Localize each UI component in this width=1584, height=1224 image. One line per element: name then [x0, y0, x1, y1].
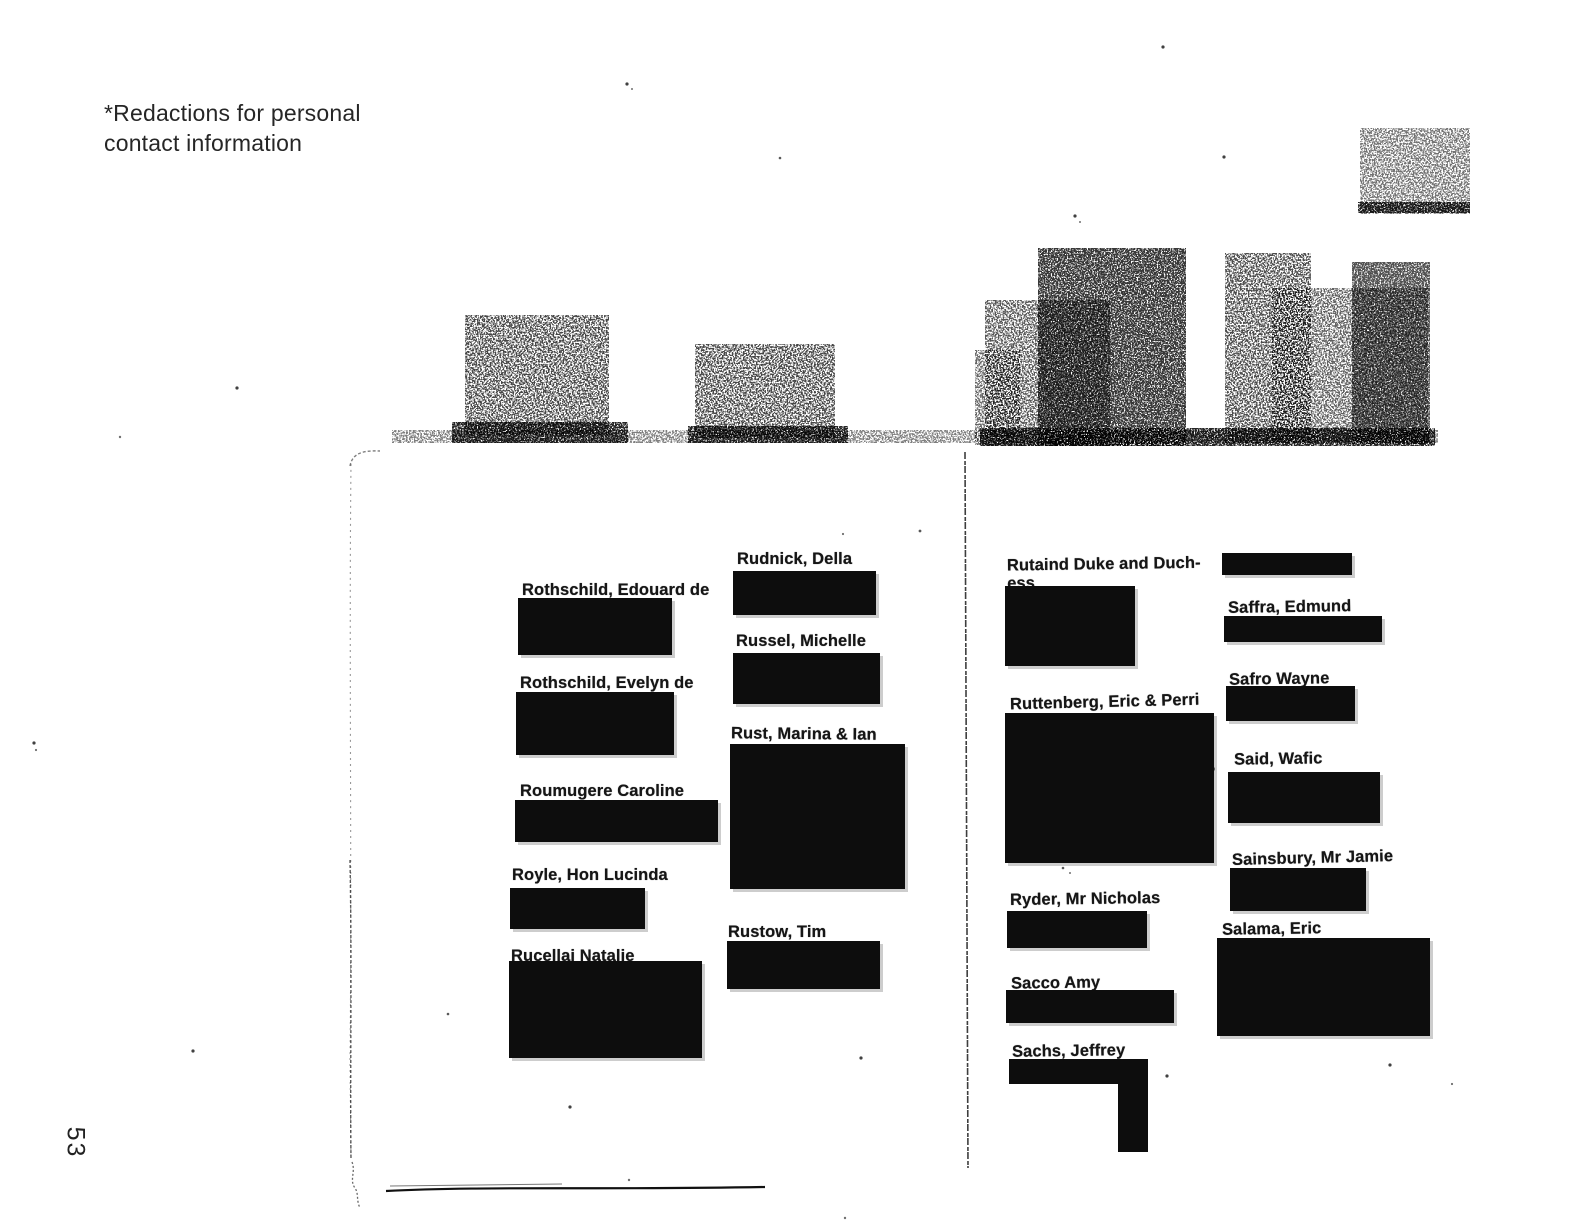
- redaction-box: [1217, 938, 1430, 1036]
- scan-noise-band: [392, 430, 1438, 443]
- page-bottom-rule: [386, 1184, 765, 1191]
- contact-name-label: Sainsbury, Mr Jamie: [1232, 847, 1394, 870]
- page-number: 53: [61, 1120, 90, 1166]
- redaction-box: [1228, 772, 1380, 823]
- redaction-box: [1118, 1080, 1148, 1152]
- contact-name-label: Rust, Marina & Ian: [731, 724, 877, 745]
- contact-name-label: Roumugere Caroline: [520, 782, 684, 801]
- page-divider-line: [965, 452, 968, 1168]
- scan-noise-blob: [975, 248, 1435, 446]
- redaction-box: [1005, 713, 1214, 863]
- redaction-box: [509, 961, 702, 1058]
- contact-name-label: Salama, Eric: [1222, 919, 1322, 939]
- redaction-note-line2: contact information: [104, 128, 361, 158]
- contact-name-label: Ryder, Mr Nicholas: [1010, 889, 1161, 910]
- contact-name-label: Rustow, Tim: [728, 923, 826, 942]
- redaction-box: [1224, 616, 1382, 642]
- scanned-document-page: *Redactions for personal contact informa…: [0, 0, 1584, 1224]
- redaction-box: [1226, 686, 1355, 721]
- redaction-box: [510, 888, 645, 929]
- redaction-note: *Redactions for personal contact informa…: [104, 98, 361, 158]
- contact-name-label: Saffra, Edmund: [1228, 597, 1352, 618]
- redaction-box: [518, 598, 672, 655]
- book-spine-line: [350, 451, 380, 1208]
- redaction-box: [1005, 586, 1135, 666]
- redaction-box: [727, 941, 880, 989]
- redaction-box: [1007, 911, 1147, 948]
- redaction-box: [515, 800, 718, 842]
- redaction-box: [516, 692, 674, 755]
- redaction-box: [733, 571, 876, 615]
- redaction-box: [733, 653, 880, 704]
- scan-noise-blob: [452, 315, 628, 443]
- contact-name-label: Rothschild, Evelyn de: [520, 674, 694, 693]
- redaction-box: [1222, 553, 1352, 575]
- contact-name-label: Royle, Hon Lucinda: [512, 866, 668, 885]
- contact-name-label: Rudnick, Della: [737, 550, 852, 569]
- scan-noise-blob: [688, 344, 848, 443]
- redaction-note-line1: *Redactions for personal: [104, 98, 361, 128]
- redaction-box: [1230, 868, 1366, 911]
- contact-name-label: Said, Wafic: [1234, 749, 1323, 769]
- redaction-box: [730, 744, 905, 889]
- contact-name-label: Russel, Michelle: [736, 632, 866, 651]
- scan-noise-blob: [1358, 128, 1470, 214]
- contact-name-line1: Rutaind Duke and Duch-: [1007, 554, 1201, 575]
- redaction-box: [1006, 990, 1174, 1023]
